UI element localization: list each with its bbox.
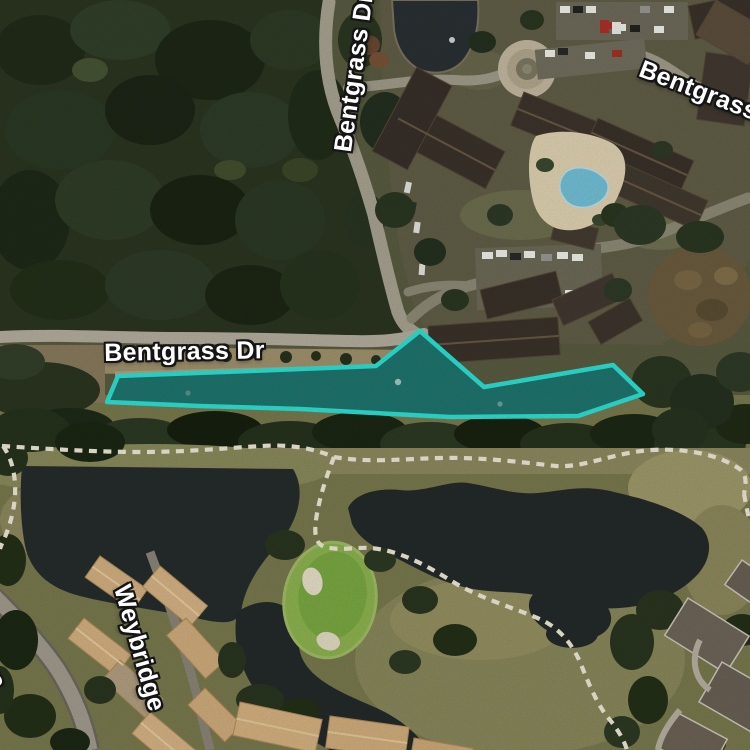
satellite-map-canvas[interactable]	[0, 0, 750, 750]
grain-overlay	[0, 0, 750, 750]
map-screenshot: { "map": { "kind": "satellite-aerial-map…	[0, 0, 750, 750]
